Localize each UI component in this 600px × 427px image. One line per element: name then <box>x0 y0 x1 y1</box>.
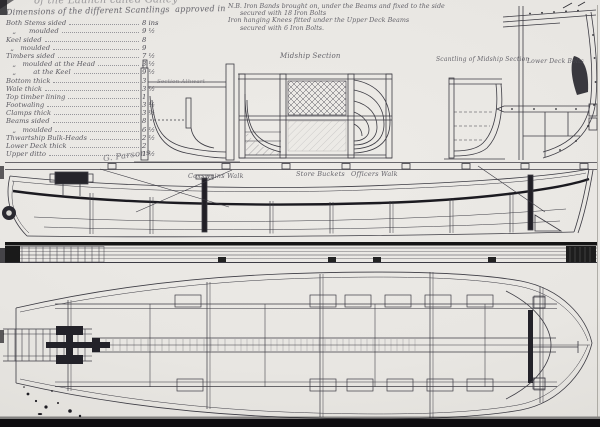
nb-note: N.B. Iron Bands brought on, under the Be… <box>228 3 443 32</box>
dotted-leader <box>69 24 139 25</box>
dotted-leader <box>45 41 139 42</box>
scantling-label: Wale thick <box>6 85 42 93</box>
dotted-leader <box>62 32 139 33</box>
dotted-leader <box>98 65 139 66</box>
scantling-row: „ moulded at the Head3 ½ <box>6 60 166 68</box>
profile-post-aft <box>202 178 207 232</box>
scantling-row: „ at the Keel9 ½ <box>6 68 166 76</box>
dotted-leader <box>90 139 139 140</box>
dotted-leader <box>45 90 139 91</box>
dotted-leader <box>68 98 139 99</box>
scantling-row: Bottom thick3 <box>6 76 166 84</box>
scantling-midship-drawing <box>444 78 505 159</box>
scantling-row: „ moulded6 ½ <box>6 125 166 133</box>
scantling-row: Top timber lining1 <box>6 93 166 101</box>
scanned-boat-plan: of the Launch called Galley Dimensions o… <box>0 0 600 427</box>
coxswains-walk-label: Coxswains Walk <box>188 172 244 180</box>
bow-post-plan <box>528 310 533 383</box>
scantling-value: 9 ½ <box>142 68 166 76</box>
nb-note-line: secured with 6 Iron Bolts. <box>228 25 443 32</box>
scantling-label: „ moulded <box>6 44 50 52</box>
scantling-value: 8 <box>142 117 166 125</box>
dotted-leader <box>74 73 139 74</box>
scantling-label: Keel sided <box>6 36 42 44</box>
scantling-label: „ moulded at the Head <box>6 60 95 68</box>
scantling-value: 7 ½ <box>142 52 166 60</box>
rail-strip <box>5 163 597 170</box>
store-buckets-label: Store Buckets <box>296 170 345 178</box>
scantling-label: Both Stems sided <box>6 19 66 27</box>
dotted-leader <box>53 122 139 123</box>
scantling-value: 3 ½ <box>142 85 166 93</box>
scantling-value: 8 ins <box>142 19 166 27</box>
scantling-label: Upper ditto <box>6 150 46 158</box>
scantling-value: 1 <box>142 93 166 101</box>
scantling-label: Lower Deck thick <box>6 142 67 150</box>
windlass-profile <box>50 172 93 196</box>
scantling-value: 6 ½ <box>142 126 166 134</box>
corner-marks <box>563 2 585 8</box>
scantling-label: Footwaling <box>6 101 44 109</box>
profile-post-fore <box>528 175 533 230</box>
section-athwart-label: Section Athwart <box>157 79 205 85</box>
plan-view-drawing <box>3 272 592 419</box>
scantling-row: Footwaling3 ½ <box>6 101 166 109</box>
dotted-leader <box>53 49 139 50</box>
scantling-value: 2 ½ <box>142 134 166 142</box>
scantling-row: „ moulded9 <box>6 44 166 52</box>
scantling-value: 3 ½ <box>142 101 166 109</box>
keel-strip-drawing <box>5 242 597 263</box>
scantling-row: Both Stems sided8 ins <box>6 19 166 27</box>
scantling-label: Beams sided <box>6 117 50 125</box>
scantling-row: Thwartship Bulk-Heads2 ½ <box>6 134 166 142</box>
scantling-midship-label: Scantling of Midship Section <box>436 56 529 63</box>
scantling-row: Wale thick3 ½ <box>6 85 166 93</box>
scantling-label: Thwartship Bulk-Heads <box>6 134 87 142</box>
scantling-label: Clamps thick <box>6 109 51 117</box>
dotted-leader <box>55 131 139 132</box>
midship-section-label: Midship Section <box>280 52 341 60</box>
scantlings-table: Both Stems sided8 ins „ moulded9 ½ Keel … <box>6 19 166 158</box>
scantling-value: 3 ½ <box>142 60 166 68</box>
scantling-row: Keel sided8 <box>6 35 166 43</box>
scantling-value: 8 <box>142 36 166 44</box>
dotted-leader <box>47 106 139 107</box>
scantling-label: „ moulded <box>6 27 59 35</box>
scantling-row: Timbers sided7 ½ <box>6 52 166 60</box>
scantling-value: 3 ½ <box>142 109 166 117</box>
midship-section-drawing <box>238 74 392 158</box>
dotted-leader <box>70 147 139 148</box>
scantling-label: „ at the Keel <box>6 68 71 76</box>
ink-spots <box>23 386 81 417</box>
scantling-value: 9 <box>142 44 166 52</box>
dotted-leader <box>54 114 139 115</box>
scantling-label: „ moulded <box>6 126 52 134</box>
scantling-row: Beams sided8 <box>6 117 166 125</box>
dotted-leader <box>58 57 139 58</box>
scantling-row: „ moulded9 ½ <box>6 27 166 35</box>
scantling-label: Bottom thick <box>6 77 50 85</box>
scantling-label: Timbers sided <box>6 52 55 60</box>
officers-walk-label: Officers Walk <box>351 170 398 178</box>
scantling-value: 9 ½ <box>142 27 166 35</box>
scantling-label: Top timber lining <box>6 93 65 101</box>
fore-section-drawing <box>497 2 597 160</box>
lower-deck-label: Lower Deck Bolts <box>527 58 584 65</box>
scantling-row: Clamps thick3 ½ <box>6 109 166 117</box>
dotted-leader <box>53 82 139 83</box>
